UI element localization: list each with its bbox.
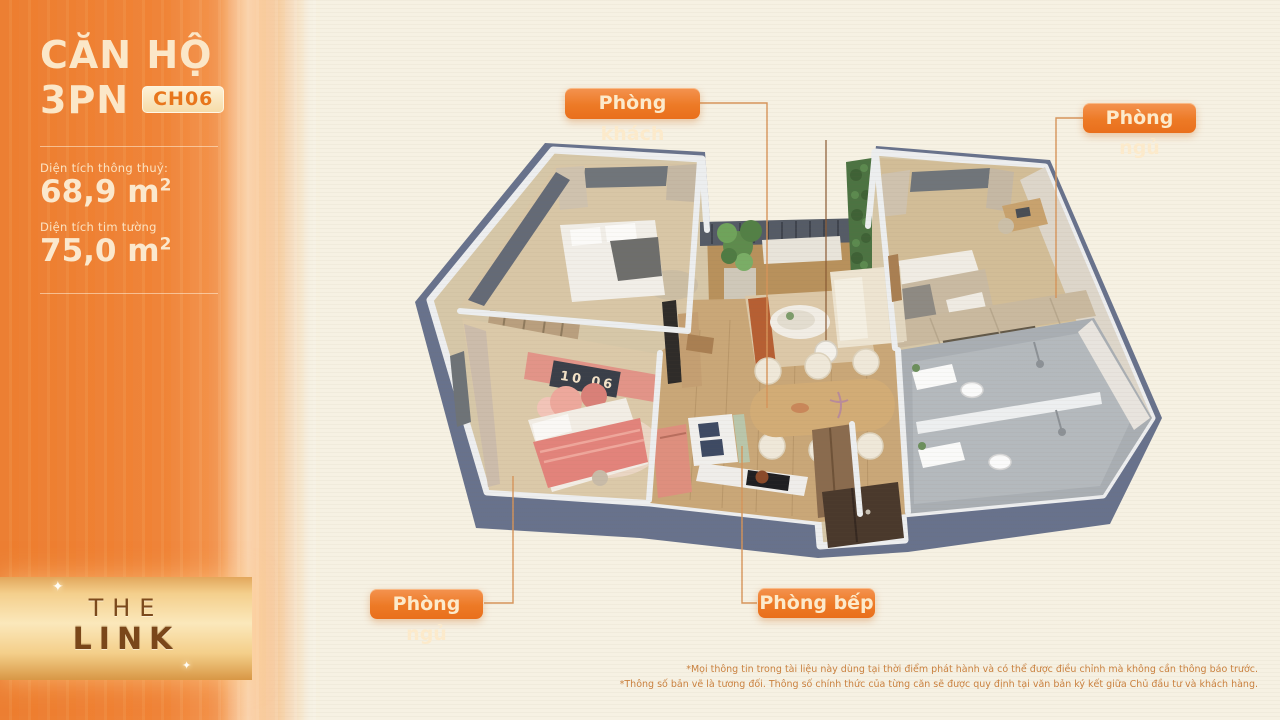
entrance-door xyxy=(822,482,904,548)
divider xyxy=(40,293,218,294)
brand-logo: ✦ ✦ THE LINK xyxy=(0,577,252,680)
net-area-spec: Diện tích thông thuỷ: 68,9 m2 xyxy=(40,161,171,211)
unit-code-badge: CH06 xyxy=(142,86,224,113)
master-curtain xyxy=(880,170,910,217)
disclaimer-line-2: *Thông số bản vẽ là tương đối. Thông số … xyxy=(620,678,1258,693)
net-area-label: Diện tích thông thuỷ: xyxy=(40,161,171,175)
desk-chair xyxy=(998,218,1014,234)
sparkle-icon: ✦ xyxy=(182,659,191,672)
sparkle-icon: ✦ xyxy=(52,579,64,595)
toilet xyxy=(989,455,1011,470)
title-block: CĂN HỘ 3PN CH06 xyxy=(40,36,224,122)
planter xyxy=(724,268,756,300)
logo-line-1: THE xyxy=(0,594,252,622)
bedroom-top-left-window xyxy=(583,166,668,188)
gross-area-label: Diện tích tim tường xyxy=(40,220,171,234)
callout-bedroom-top: Phòng ngủ xyxy=(1083,103,1196,133)
gross-area-value: 75,0 m2 xyxy=(40,234,171,270)
page-title: CĂN HỘ xyxy=(40,36,224,76)
disclaimer: *Mọi thông tin trong tài liệu này dùng t… xyxy=(620,663,1258,692)
callout-bedroom-bottom: Phòng ngủ xyxy=(370,589,483,619)
callout-living-room: Phòng khách xyxy=(565,88,700,119)
bed-throw xyxy=(610,237,662,281)
bedroom-top-left-curtain xyxy=(666,164,697,202)
unit-type: 3PN xyxy=(40,78,129,122)
sidebar: CĂN HỘ 3PN CH06 Diện tích thông thuỷ: 68… xyxy=(0,0,320,720)
logo-line-2: LINK xyxy=(0,622,252,657)
master-window xyxy=(910,168,990,192)
net-area-value: 68,9 m2 xyxy=(40,175,171,211)
toilet xyxy=(961,383,983,398)
gross-area-spec: Diện tích tim tường 75,0 m2 xyxy=(40,220,171,270)
disclaimer-line-1: *Mọi thông tin trong tài liệu này dùng t… xyxy=(620,663,1258,678)
callout-kitchen: Phòng bếp xyxy=(758,588,875,618)
page-background: 10 06 xyxy=(0,0,1280,720)
divider xyxy=(40,146,218,147)
balcony-bench xyxy=(762,236,842,264)
